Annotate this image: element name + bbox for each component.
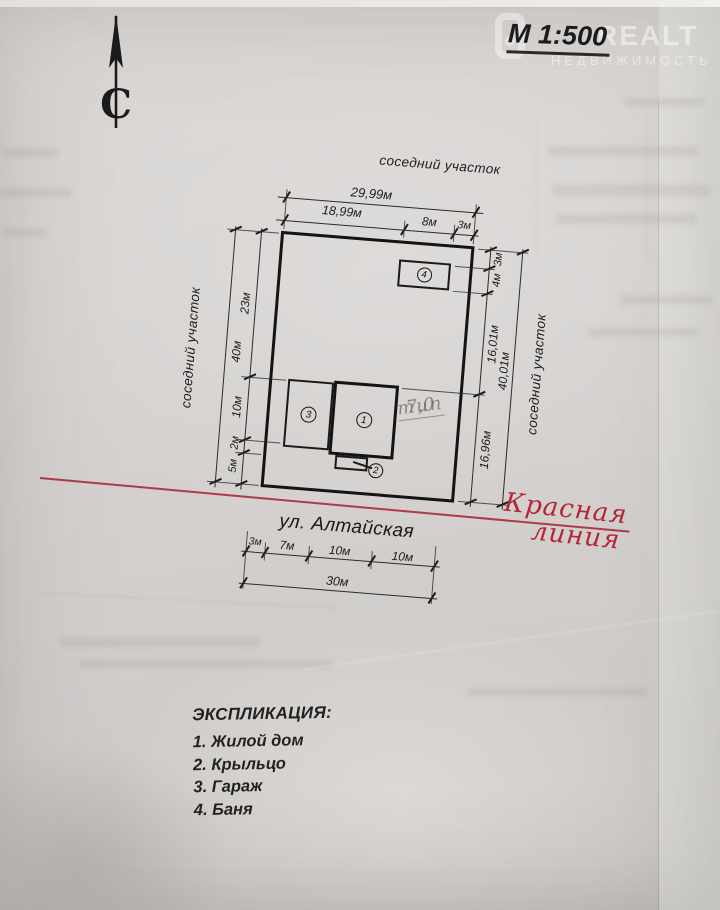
north-arrow-icon: С <box>85 8 147 134</box>
building-garage: 3 <box>283 379 334 450</box>
bleed-through <box>0 188 72 198</box>
paper-crease <box>302 611 718 670</box>
bleed-through <box>620 295 712 304</box>
scale-label: М 1:500 <box>506 18 610 57</box>
bleed-through <box>556 214 696 224</box>
extension-line <box>283 189 287 229</box>
garage-number: 3 <box>300 406 317 423</box>
paper-top-edge <box>0 0 720 7</box>
bleed-through <box>646 112 648 262</box>
bleed-through <box>548 146 698 156</box>
legend-title: ЭКСПЛИКАЦИЯ: <box>192 703 332 725</box>
house-number: 1 <box>355 411 372 428</box>
bleed-through <box>80 660 335 668</box>
paper-crease <box>40 592 340 609</box>
dim-left-total: 40м <box>227 326 245 377</box>
bleed-through <box>536 120 538 260</box>
north-arrow: С <box>85 8 147 134</box>
neighbor-label-top: соседний участок <box>365 151 516 178</box>
legend-item-garage: 3. Гараж <box>193 774 333 799</box>
legend-item-banya: 4. Баня <box>194 796 334 821</box>
dim-right-seg4: 16,96м <box>476 421 494 478</box>
dim-bottom-total: 30м <box>317 573 358 590</box>
bleed-through <box>2 148 58 158</box>
bleed-through <box>588 328 698 337</box>
bleed-through <box>2 228 46 237</box>
legend: ЭКСПЛИКАЦИЯ: 1. Жилой дом 2. Крыльцо 3. … <box>192 703 334 821</box>
legend-item-house: 1. Жилой дом <box>192 729 332 754</box>
dim-top-seg3: 3м <box>447 218 482 233</box>
neighbor-label-left: соседний участок <box>177 267 205 428</box>
neighbor-label-right: соседний участок <box>523 294 551 455</box>
legend-item-porch: 2. Крыльцо <box>193 751 333 776</box>
watermark-brand: REALT <box>597 20 698 52</box>
dim-left-seg4: 5м <box>226 444 241 487</box>
dim-top-seg2: 8м <box>411 213 448 230</box>
building-house: 1 <box>328 381 399 460</box>
scanned-site-plan: REALT НЕДВИЖИМОСТЬ М 1:500 С 4 3 1 2 7,0… <box>0 0 720 910</box>
building-porch <box>334 455 368 472</box>
dim-left-seg1: 23м <box>236 278 254 329</box>
building-banya: 4 <box>397 259 451 290</box>
dim-bottom-seg2: 7м <box>266 537 307 554</box>
bleed-through <box>468 688 646 696</box>
bleed-through <box>552 185 710 196</box>
bleed-through <box>624 98 704 106</box>
paper-right-page <box>659 0 720 910</box>
banya-number: 4 <box>416 267 432 283</box>
bleed-through <box>60 638 260 647</box>
